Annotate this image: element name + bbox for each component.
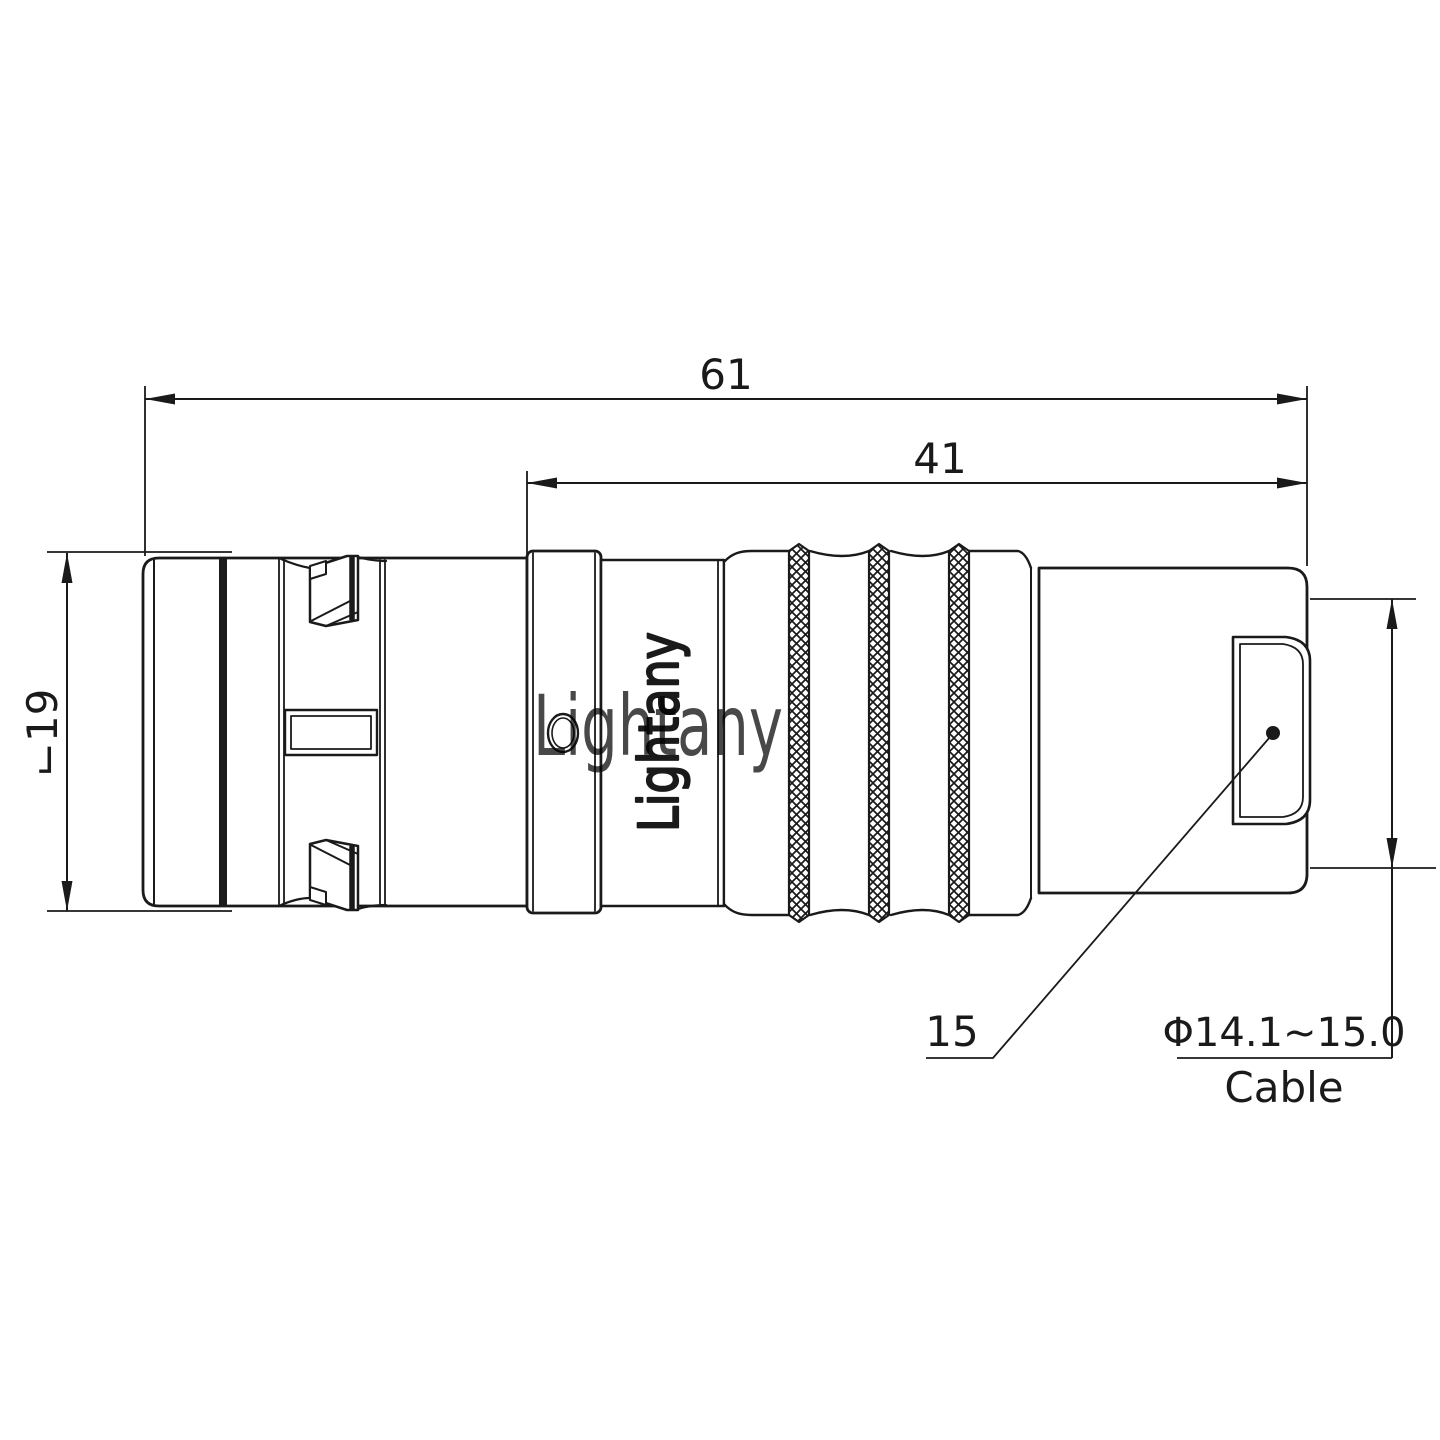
watermark-text: Lightany: [533, 677, 783, 775]
knurl-band-2: [869, 544, 889, 922]
dim-body-diameter-value: ⌙19: [18, 689, 67, 778]
latch-window: [285, 710, 377, 755]
dim-cable-clamp: [1310, 599, 1436, 1058]
label-sleeve-diameter-value: 15: [925, 1007, 978, 1056]
cable-label: Cable: [1224, 1063, 1343, 1112]
seal-ring-band: [219, 558, 227, 906]
cable-sleeve: [1233, 637, 1310, 824]
arrowhead: [527, 478, 557, 489]
connector-technical-drawing: Lightany: [0, 0, 1440, 1440]
dim-total-length: 61: [145, 350, 1307, 566]
dim-rear-length: 41: [527, 434, 1307, 554]
arrowhead: [62, 881, 73, 911]
arrowhead: [145, 394, 175, 405]
arrowhead: [1277, 394, 1307, 405]
cable-range-value: Φ14.1~15.0: [1162, 1010, 1405, 1056]
knurl-band-1: [789, 544, 809, 922]
arrowhead: [62, 553, 73, 583]
arrowhead: [1387, 599, 1398, 629]
dim-total-length-value: 61: [699, 350, 752, 399]
arrowhead: [1387, 838, 1398, 868]
rear-body: [1039, 568, 1310, 893]
arrowhead: [1277, 478, 1307, 489]
dim-rear-length-value: 41: [913, 434, 966, 483]
front-shell: [143, 556, 527, 910]
drawing-svg: Lightany: [0, 0, 1440, 1440]
knurl-band-3: [949, 544, 969, 922]
label-cable-spec: Φ14.1~15.0 Cable: [1162, 1010, 1405, 1112]
